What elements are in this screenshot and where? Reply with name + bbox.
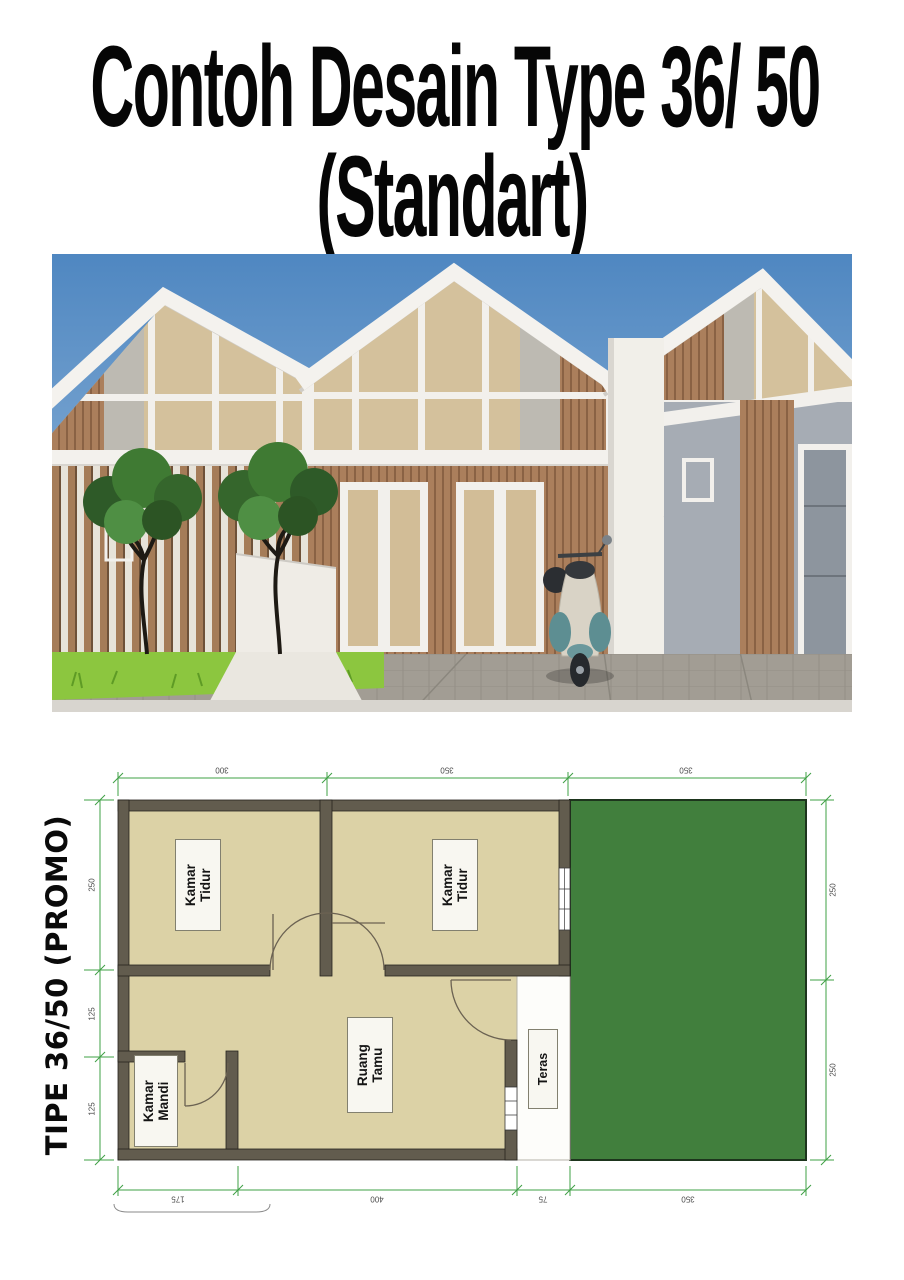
room-label-bedroom1: KamarTidur bbox=[175, 839, 221, 931]
section-brace bbox=[114, 1204, 270, 1212]
room-label-bathroom: KamarMandi bbox=[134, 1055, 178, 1147]
dim-left-2: 125 bbox=[88, 1006, 97, 1021]
page-title: Contoh Desain Type 36/ 50 (Standart) bbox=[0, 36, 904, 250]
floor-plan: 300 350 350 175 400 75 350 250 125 125 2… bbox=[70, 758, 848, 1228]
plan-title: TIPE 36/50 (PROMO) bbox=[40, 815, 74, 1155]
yard-area bbox=[570, 800, 806, 1160]
dim-bottom-2: 400 bbox=[369, 1195, 384, 1204]
entry-door-right bbox=[456, 482, 544, 652]
party-wall-pillar bbox=[608, 338, 664, 654]
house-render-image bbox=[52, 254, 852, 712]
promo-sheet-page: Contoh Desain Type 36/ 50 (Standart) bbox=[0, 0, 904, 1280]
right-house-facade bbox=[664, 386, 852, 654]
entry-door-left bbox=[340, 482, 428, 652]
room-label-bedroom2: KamarTidur bbox=[432, 839, 478, 931]
dim-bottom-1: 175 bbox=[170, 1195, 185, 1204]
dim-top-1: 300 bbox=[214, 766, 229, 775]
pillar-shadow bbox=[608, 338, 614, 654]
room-label-terrace: Teras bbox=[528, 1029, 558, 1109]
dim-left-3: 125 bbox=[88, 1101, 97, 1116]
floor-plan-drawing bbox=[70, 758, 848, 1228]
dim-bottom-4: 350 bbox=[680, 1195, 695, 1204]
dim-right-2: 250 bbox=[829, 1062, 838, 1077]
dim-top-2: 350 bbox=[439, 766, 454, 775]
right-gray-door bbox=[798, 444, 852, 654]
right-wood-slats bbox=[740, 400, 794, 654]
dim-right-1: 250 bbox=[829, 882, 838, 897]
dim-top-3: 350 bbox=[678, 766, 693, 775]
dim-left-1: 250 bbox=[88, 877, 97, 892]
room-label-living: RuangTamu bbox=[347, 1017, 393, 1113]
curb-strip bbox=[52, 700, 852, 712]
dim-bottom-3: 75 bbox=[538, 1195, 549, 1204]
planter-wall bbox=[236, 554, 336, 652]
